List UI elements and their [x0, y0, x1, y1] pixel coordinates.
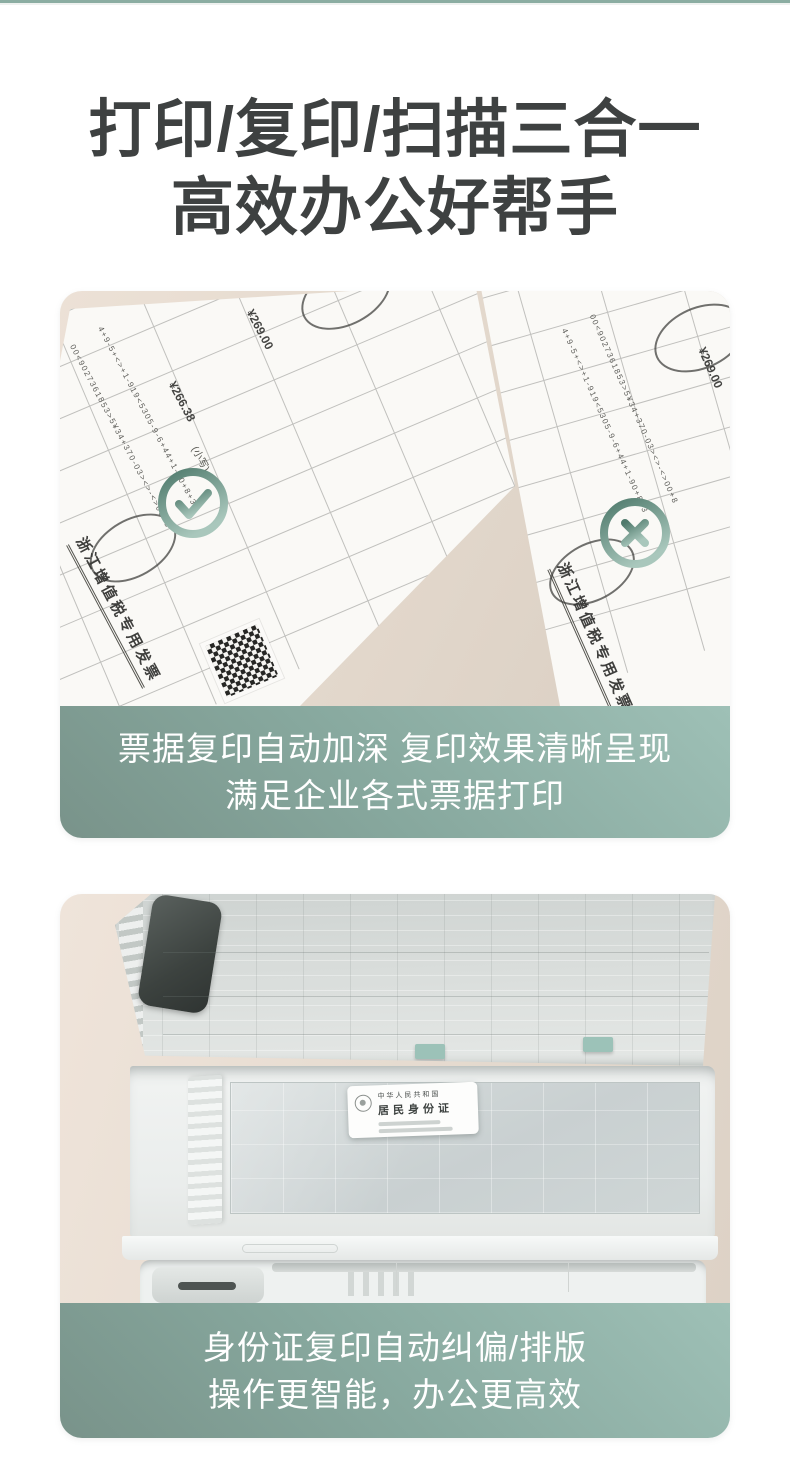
- scanner-front-edge: [122, 1236, 718, 1260]
- idcard-caption-banner: 身份证复印自动纠偏/排版 操作更智能，办公更高效: [60, 1303, 730, 1438]
- headline-line1: 打印/复印/扫描三合一: [0, 91, 790, 169]
- idcard-detail-bar: [378, 1120, 440, 1126]
- feature-card-idcard-copy: 中华人民共和国 居民身份证 身份证复印自动纠偏/排版 操作更智能，办公更高效: [60, 894, 730, 1438]
- invoice-photo: 浙江增值税专用发票 00<9027361853>5¥34+370-03><>-<…: [60, 291, 730, 706]
- printer-lid: [115, 894, 715, 1066]
- lid-hinge-pad: [415, 1044, 445, 1059]
- lid-hinge-pad: [583, 1037, 613, 1052]
- lid-panel-line: [163, 996, 709, 997]
- national-emblem-icon: [354, 1094, 372, 1112]
- idcard-title-line: 居民身份证: [378, 1099, 473, 1118]
- idcard-caption-line1: 身份证复印自动纠偏/排版: [203, 1324, 587, 1371]
- invoice-caption-line1: 票据复印自动加深 复印效果清晰呈现: [118, 725, 672, 772]
- check-icon: [155, 465, 231, 541]
- x-icon: [597, 495, 673, 571]
- lid-lift-notch: [242, 1244, 338, 1253]
- lid-rib-detail: [119, 900, 143, 1054]
- vent-ribs: [348, 1272, 420, 1296]
- feature-card-invoice-copy: 浙江增值税专用发票 00<9027361853>5¥34+370-03><>-<…: [60, 291, 730, 838]
- front-slot: [178, 1282, 236, 1290]
- printer-scanner-photo: 中华人民共和国 居民身份证: [60, 894, 730, 1303]
- idcard-detail-bar: [379, 1127, 453, 1134]
- front-bumper: [152, 1267, 264, 1303]
- output-tray-gap: [272, 1263, 696, 1272]
- panel-seam: [568, 1262, 569, 1292]
- idcard-caption-line2: 操作更智能，办公更高效: [208, 1371, 582, 1418]
- id-card: 中华人民共和国 居民身份证: [347, 1082, 479, 1139]
- printer-body: [140, 1260, 706, 1303]
- page-title: 打印/复印/扫描三合一 高效办公好帮手: [0, 91, 790, 247]
- headline-line2: 高效办公好帮手: [0, 169, 790, 247]
- scanner-deck: 中华人民共和国 居民身份证: [130, 1066, 715, 1236]
- invoice-caption-line2: 满足企业各式票据打印: [225, 772, 565, 819]
- paper-size-ruler: [188, 1075, 222, 1225]
- lid-panel-line: [163, 1034, 709, 1035]
- panel-seam: [396, 1262, 397, 1292]
- lid-panel-line: [163, 952, 709, 953]
- invoice-caption-banner: 票据复印自动加深 复印效果清晰呈现 满足企业各式票据打印: [60, 706, 730, 838]
- page-header: 打印/复印/扫描三合一 高效办公好帮手: [0, 5, 790, 247]
